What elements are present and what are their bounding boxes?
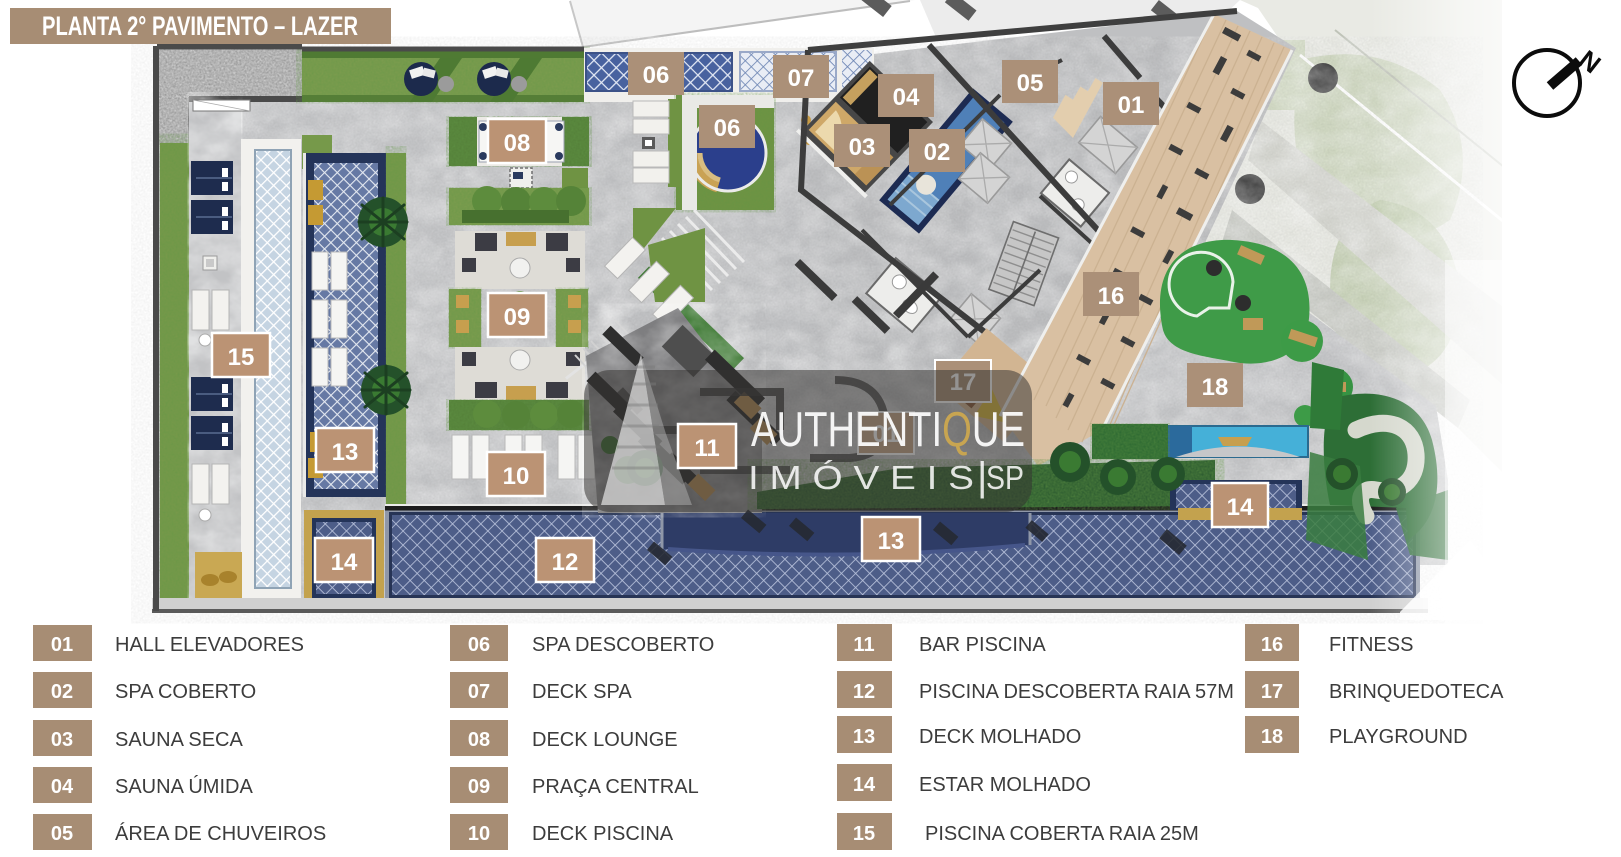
svg-text:BAR PISCINA: BAR PISCINA [919, 634, 1046, 656]
svg-text:BRINQUEDOTECA: BRINQUEDOTECA [1329, 681, 1504, 703]
svg-text:17: 17 [1261, 681, 1283, 703]
svg-text:05: 05 [51, 823, 73, 845]
svg-text:PLAYGROUND: PLAYGROUND [1329, 726, 1468, 748]
svg-text:AUTHENTIQUE: AUTHENTIQUE [751, 403, 1025, 457]
svg-text:07: 07 [468, 681, 490, 703]
svg-text:12: 12 [552, 549, 579, 576]
svg-text:15: 15 [228, 344, 255, 371]
svg-text:03: 03 [51, 729, 73, 751]
svg-text:SPA COBERTO: SPA COBERTO [115, 681, 256, 703]
svg-text:ESTAR MOLHADO: ESTAR MOLHADO [919, 774, 1091, 796]
svg-text:03: 03 [849, 134, 876, 161]
svg-text:14: 14 [1227, 494, 1254, 521]
svg-text:14: 14 [331, 549, 358, 576]
svg-text:13: 13 [853, 726, 875, 748]
svg-text:DECK MOLHADO: DECK MOLHADO [919, 726, 1081, 748]
svg-text:04: 04 [51, 776, 74, 798]
svg-text:07: 07 [788, 65, 815, 92]
svg-text:HALL ELEVADORES: HALL ELEVADORES [115, 634, 304, 656]
svg-text:PISCINA DESCOBERTA RAIA 57M: PISCINA DESCOBERTA RAIA 57M [919, 681, 1234, 703]
svg-text:15: 15 [853, 823, 875, 845]
svg-text:06: 06 [714, 115, 741, 142]
svg-text:ÁREA DE CHUVEIROS: ÁREA DE CHUVEIROS [115, 822, 326, 845]
svg-text:09: 09 [468, 776, 490, 798]
svg-text:18: 18 [1261, 726, 1283, 748]
svg-text:PRAÇA CENTRAL: PRAÇA CENTRAL [532, 776, 699, 798]
svg-text:PLANTA 2° PAVIMENTO – LAZER: PLANTA 2° PAVIMENTO – LAZER [42, 11, 358, 41]
svg-text:02: 02 [51, 681, 73, 703]
svg-text:11: 11 [694, 435, 719, 462]
svg-text:FITNESS: FITNESS [1329, 634, 1413, 656]
svg-text:SPA DESCOBERTO: SPA DESCOBERTO [532, 634, 714, 656]
svg-text:01: 01 [1118, 92, 1145, 119]
svg-text:10: 10 [468, 823, 490, 845]
svg-text:DECK PISCINA: DECK PISCINA [532, 823, 674, 845]
svg-text:SP: SP [986, 459, 1024, 496]
svg-text:13: 13 [878, 528, 905, 555]
svg-text:08: 08 [468, 729, 490, 751]
svg-text:18: 18 [1202, 374, 1229, 401]
svg-text:DECK SPA: DECK SPA [532, 681, 632, 703]
svg-text:16: 16 [1261, 634, 1283, 656]
svg-text:I M Ó V E I S: I M Ó V E I S [748, 459, 974, 496]
svg-text:SAUNA ÚMIDA: SAUNA ÚMIDA [115, 775, 253, 798]
svg-text:13: 13 [332, 439, 359, 466]
svg-text:06: 06 [468, 634, 490, 656]
svg-text:06: 06 [643, 62, 670, 89]
svg-text:DECK LOUNGE: DECK LOUNGE [532, 729, 678, 751]
svg-text:SAUNA SECA: SAUNA SECA [115, 729, 243, 751]
svg-text:16: 16 [1098, 283, 1125, 310]
svg-text:09: 09 [504, 304, 531, 331]
svg-text:08: 08 [504, 130, 531, 157]
svg-text:PISCINA COBERTA RAIA 25M: PISCINA COBERTA RAIA 25M [925, 823, 1199, 845]
svg-text:05: 05 [1017, 70, 1044, 97]
svg-text:10: 10 [503, 463, 530, 490]
svg-text:12: 12 [853, 681, 875, 703]
svg-text:01: 01 [51, 634, 73, 656]
svg-text:11: 11 [853, 634, 874, 656]
svg-text:14: 14 [853, 774, 876, 796]
svg-text:02: 02 [924, 139, 951, 166]
svg-text:04: 04 [893, 84, 920, 111]
